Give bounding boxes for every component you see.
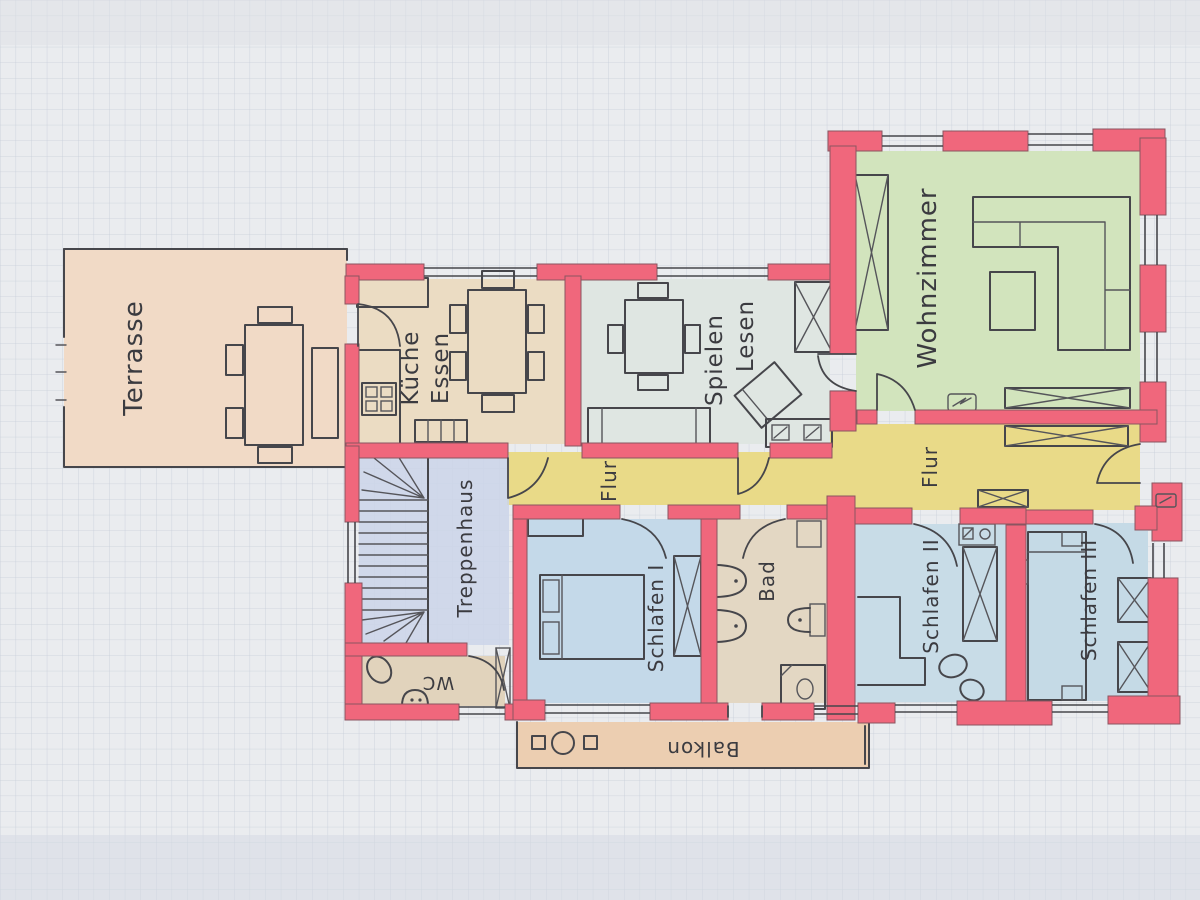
label-lesen: Lesen bbox=[733, 300, 759, 372]
room-wohnzimmer bbox=[856, 151, 1140, 411]
label-wc: WC bbox=[422, 672, 454, 693]
label-wohnzimmer: Wohnzimmer bbox=[913, 187, 943, 368]
label-bad: Bad bbox=[755, 560, 779, 602]
room-terrasse bbox=[64, 249, 347, 467]
label-schlafen-3: Schlafen III bbox=[1077, 539, 1101, 661]
label-balkon: Balkon bbox=[666, 737, 739, 761]
photo-shadow-bottom bbox=[0, 835, 1200, 900]
label-kueche: Küche bbox=[398, 331, 424, 406]
label-flur-links: Flur bbox=[597, 460, 621, 502]
label-essen: Essen bbox=[428, 332, 454, 404]
label-schlafen-2: Schlafen II bbox=[919, 538, 943, 653]
label-schlafen-1: Schlafen I bbox=[644, 564, 668, 672]
floor-plan-photo: Terrasse Küche Essen Spielen Lesen Wohnz… bbox=[0, 0, 1200, 900]
label-flur-rechts: Flur bbox=[918, 446, 942, 488]
floor-plan-drawing: Terrasse Küche Essen Spielen Lesen Wohnz… bbox=[0, 0, 1200, 900]
label-spielen: Spielen bbox=[702, 314, 728, 406]
label-terrasse: Terrasse bbox=[119, 300, 149, 416]
photo-shadow-top bbox=[0, 0, 1200, 45]
label-treppenhaus: Treppenhaus bbox=[453, 479, 477, 619]
room-treppenhaus bbox=[359, 455, 509, 645]
